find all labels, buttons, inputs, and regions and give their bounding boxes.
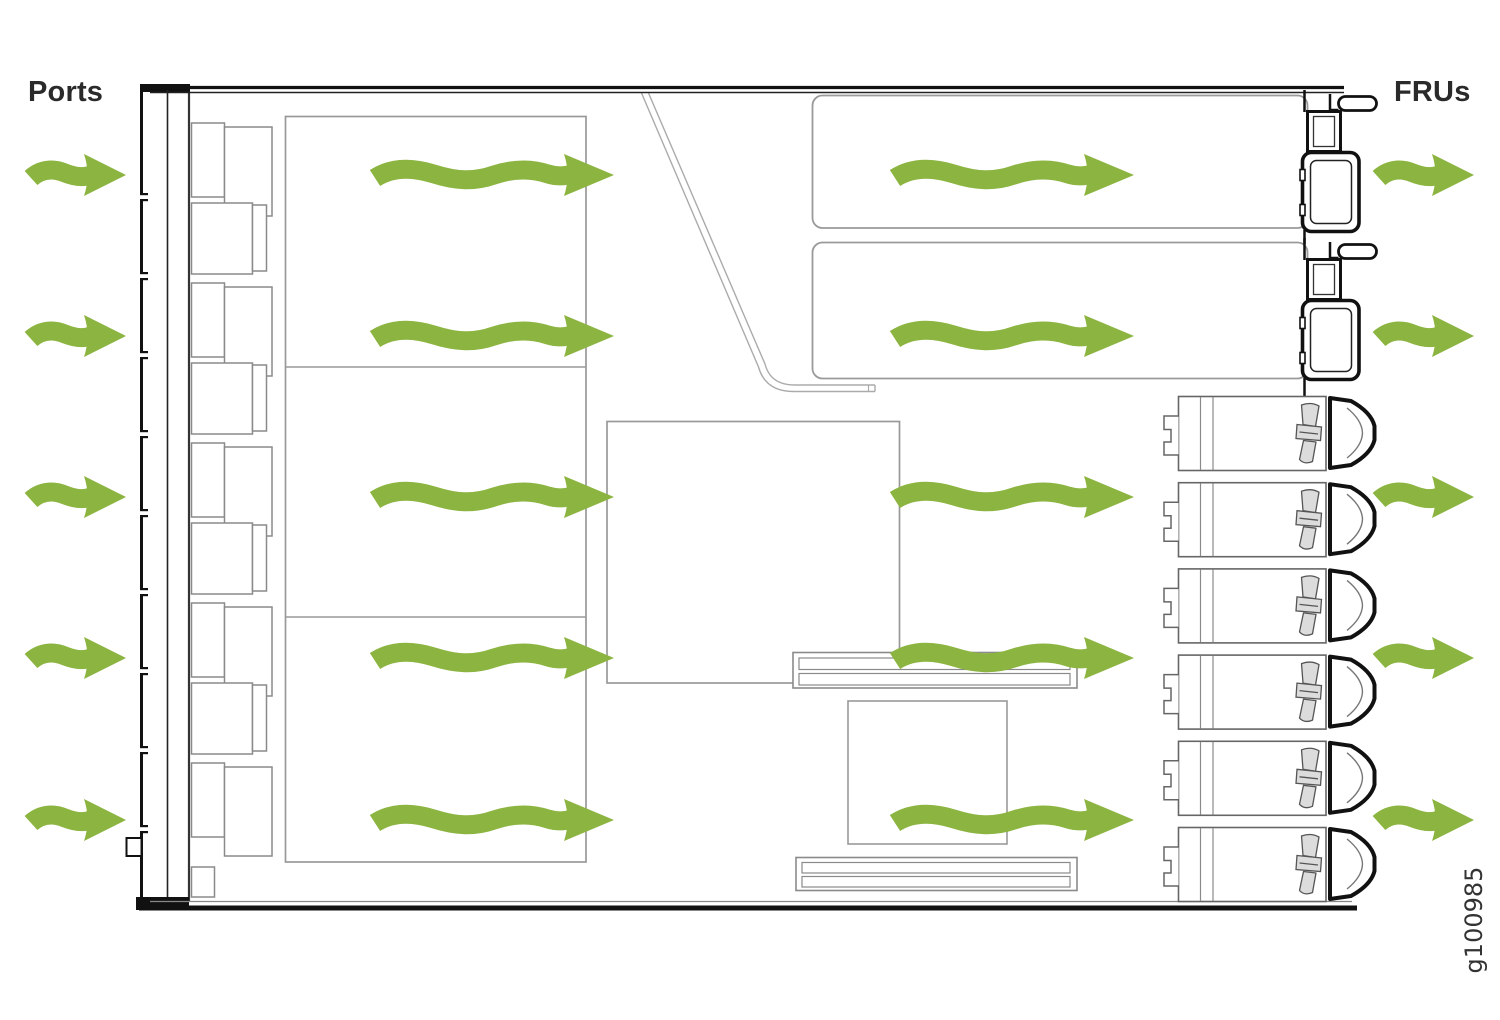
psu-bay-1 <box>813 96 1308 229</box>
figure-id-label: g100985 <box>1460 858 1488 982</box>
faceplate-notch <box>140 515 148 517</box>
port-cage-6 <box>192 523 267 594</box>
airflow-arrow-exhaust-after-frus <box>1379 476 1474 518</box>
fan-module-2 <box>1164 483 1375 557</box>
faceplate-notch <box>140 193 148 195</box>
faceplate-notch <box>140 594 148 596</box>
faceplate-notch <box>140 752 148 754</box>
fan-module-6 <box>1164 828 1375 902</box>
faceplate-notch <box>140 351 148 353</box>
airflow-arrow-through-main-board <box>895 476 1134 518</box>
port-cages <box>192 123 273 856</box>
faceplate-notch <box>140 278 148 280</box>
airflow-arrow-exhaust-after-frus <box>1379 154 1474 196</box>
psu-bay-2 <box>813 243 1308 379</box>
ports-label: Ports <box>28 76 103 109</box>
faceplate-notch <box>140 825 148 827</box>
port-cage-5 <box>192 443 273 536</box>
airflow-arrow-exhaust-after-frus <box>1379 315 1474 357</box>
heatsink-block <box>607 422 900 684</box>
faceplate-notch <box>140 588 148 590</box>
fan-module-3 <box>1164 569 1375 643</box>
airflow-arrow-intake-before-ports <box>31 799 126 841</box>
faceplate-notch <box>140 272 148 274</box>
airflow-diagram: Ports FRUs g100985 <box>0 0 1500 1020</box>
port-cage-4 <box>192 363 267 434</box>
psu-1-handle <box>1300 90 1377 232</box>
fan-module-1 <box>1164 397 1375 471</box>
airflow-arrow-intake-before-ports <box>31 476 126 518</box>
port-cage-7 <box>192 603 273 696</box>
frus-label: FRUs <box>1394 76 1471 109</box>
faceplate-notch <box>140 673 148 675</box>
port-cage-3 <box>192 283 273 376</box>
airflow-arrow-exhaust-after-frus <box>1379 637 1474 679</box>
faceplate-notch <box>140 667 148 669</box>
faceplate-notch <box>140 436 148 438</box>
faceplate-notch <box>140 199 148 201</box>
airflow-arrow-exhaust-after-frus <box>1379 799 1474 841</box>
airflow-arrow-intake-before-ports <box>31 315 126 357</box>
airflow-arrow-intake-before-ports <box>31 154 126 196</box>
faceplate-notch <box>140 509 148 511</box>
faceplate-notch <box>140 430 148 432</box>
port-cage-1 <box>192 123 273 216</box>
faceplate-notch <box>140 831 148 833</box>
dimm-bank-lower <box>796 858 1077 891</box>
port-cage-2 <box>192 203 267 274</box>
airflow-arrow-intake-before-ports <box>31 637 126 679</box>
fan-module-5 <box>1164 741 1375 815</box>
faceplate-notch <box>140 357 148 359</box>
faceplate-notch <box>140 746 148 748</box>
psu-handles <box>1300 90 1377 380</box>
port-cage-9 <box>192 763 273 856</box>
chassis-drawing <box>0 0 1500 1020</box>
port-cage-8 <box>192 683 267 754</box>
fan-module-4 <box>1164 655 1375 729</box>
mounting-tab <box>127 838 142 856</box>
psu-2-handle <box>1300 238 1377 380</box>
fan-tray <box>1164 397 1375 902</box>
